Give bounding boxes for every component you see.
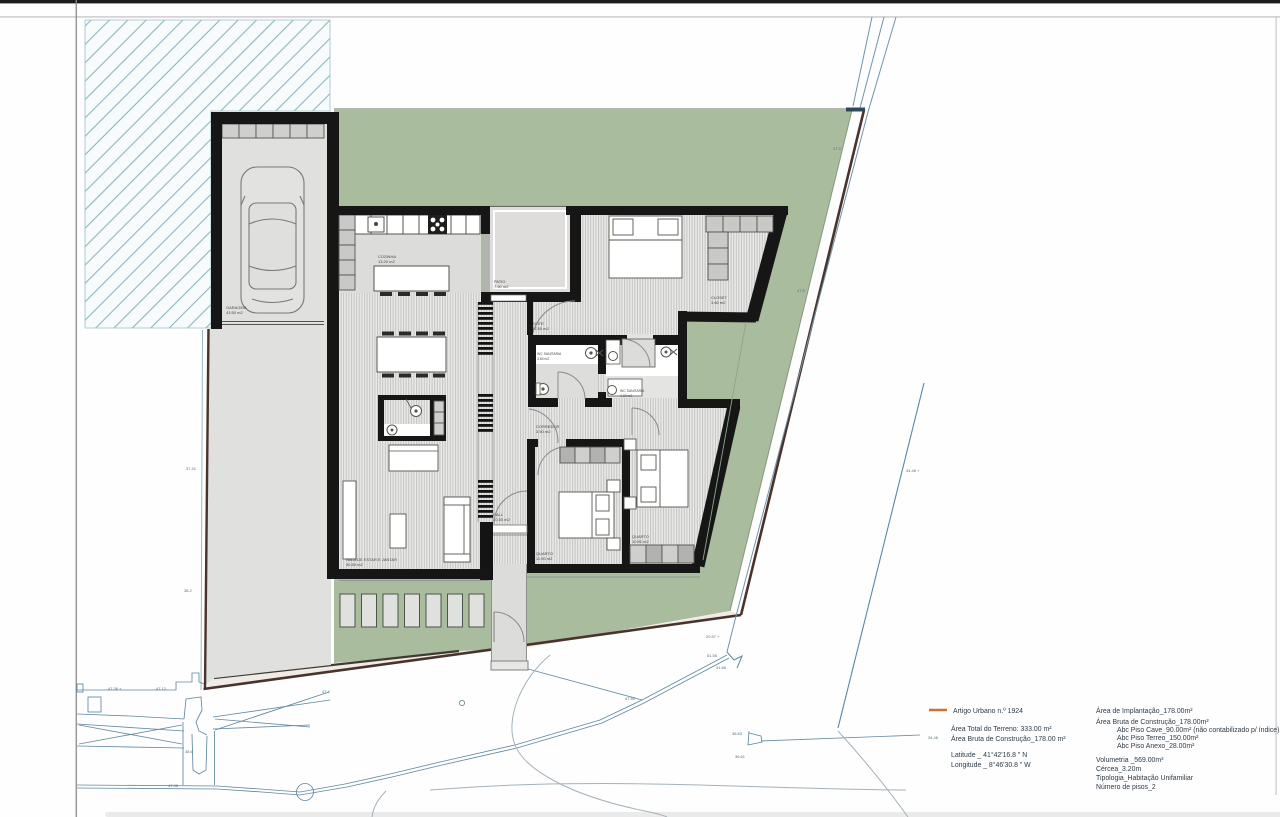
svg-text:43.50 m2: 43.50 m2 [226,310,243,315]
svg-text:Área Bruta de Construção_178.0: Área Bruta de Construção_178.00 m² [951,734,1066,743]
svg-text:47.3: 47.3 [833,146,842,151]
svg-text:3.50 m2: 3.50 m2 [536,429,551,434]
svg-text:Volumetria _569.00m³: Volumetria _569.00m³ [1096,757,1164,764]
svg-text:Área Total do Terreno: 333.00: Área Total do Terreno: 333.00 m² [951,724,1052,733]
svg-text:Tipologia_Habitação Unifamilia: Tipologia_Habitação Unifamiliar [1096,775,1194,782]
svg-text:WC SANITARIA: WC SANITARIA [537,352,562,356]
svg-text:Abc Piso Anexo_28.00m²: Abc Piso Anexo_28.00m² [1117,743,1195,750]
svg-text:3.60 m2: 3.60 m2 [711,300,726,305]
svg-text:WC SANITARIA: WC SANITARIA [620,389,645,393]
svg-text:4.00 m2: 4.00 m2 [620,394,632,398]
svg-text:36.63: 36.63 [732,731,743,736]
svg-text:47.4: 47.4 [322,689,331,694]
svg-text:Longitude _ 8°46'30.8 " W: Longitude _ 8°46'30.8 " W [951,761,1031,769]
svg-text:10.91 m2: 10.91 m2 [632,539,649,544]
svg-text:47.36 +: 47.36 + [108,686,122,691]
svg-text:7.50 m2: 7.50 m2 [494,284,509,289]
svg-text:Abc Piso Cave_90.00m² (não con: Abc Piso Cave_90.00m² (não contabilizado… [1117,727,1279,734]
svg-text:10.50 m2: 10.50 m2 [493,517,510,522]
svg-text:20.97 +: 20.97 + [706,634,720,639]
svg-text:Latitude _ 41°42'16.8 " N: Latitude _ 41°42'16.8 " N [951,751,1027,759]
svg-text:47.50: 47.50 [625,696,636,701]
svg-text:38.2: 38.2 [184,588,193,593]
svg-text:47.12: 47.12 [156,686,167,691]
svg-text:31.66: 31.66 [716,665,727,670]
svg-text:Área de Implantação_178.00m²: Área de Implantação_178.00m² [1096,706,1193,715]
svg-text:11.50 m2: 11.50 m2 [536,556,553,561]
svg-text:34.46 +: 34.46 + [906,468,920,473]
svg-text:34.46: 34.46 [928,735,939,740]
svg-text:47.38: 47.38 [168,783,179,788]
svg-text:Número de pisos_2: Número de pisos_2 [1096,784,1156,791]
svg-text:Cércea_3.20m: Cércea_3.20m [1096,766,1141,773]
svg-text:36.61: 36.61 [735,754,746,759]
svg-text:47.5: 47.5 [797,288,806,293]
svg-text:38.6: 38.6 [185,749,194,754]
svg-text:Área Bruta de Construção_178.0: Área Bruta de Construção_178.00m² [1096,717,1209,726]
svg-text:Abc Piso Terreo_150.00m²: Abc Piso Terreo_150.00m² [1117,735,1199,742]
svg-text:30.50 m2: 30.50 m2 [346,562,363,567]
svg-text:3.60 m2: 3.60 m2 [537,357,549,361]
svg-text:37.41: 37.41 [186,466,197,471]
svg-text:13.20 m2: 13.20 m2 [378,259,395,264]
svg-text:Artigo Urbano n.º 1924: Artigo Urbano n.º 1924 [953,708,1023,715]
svg-text:51.56: 51.56 [707,653,718,658]
